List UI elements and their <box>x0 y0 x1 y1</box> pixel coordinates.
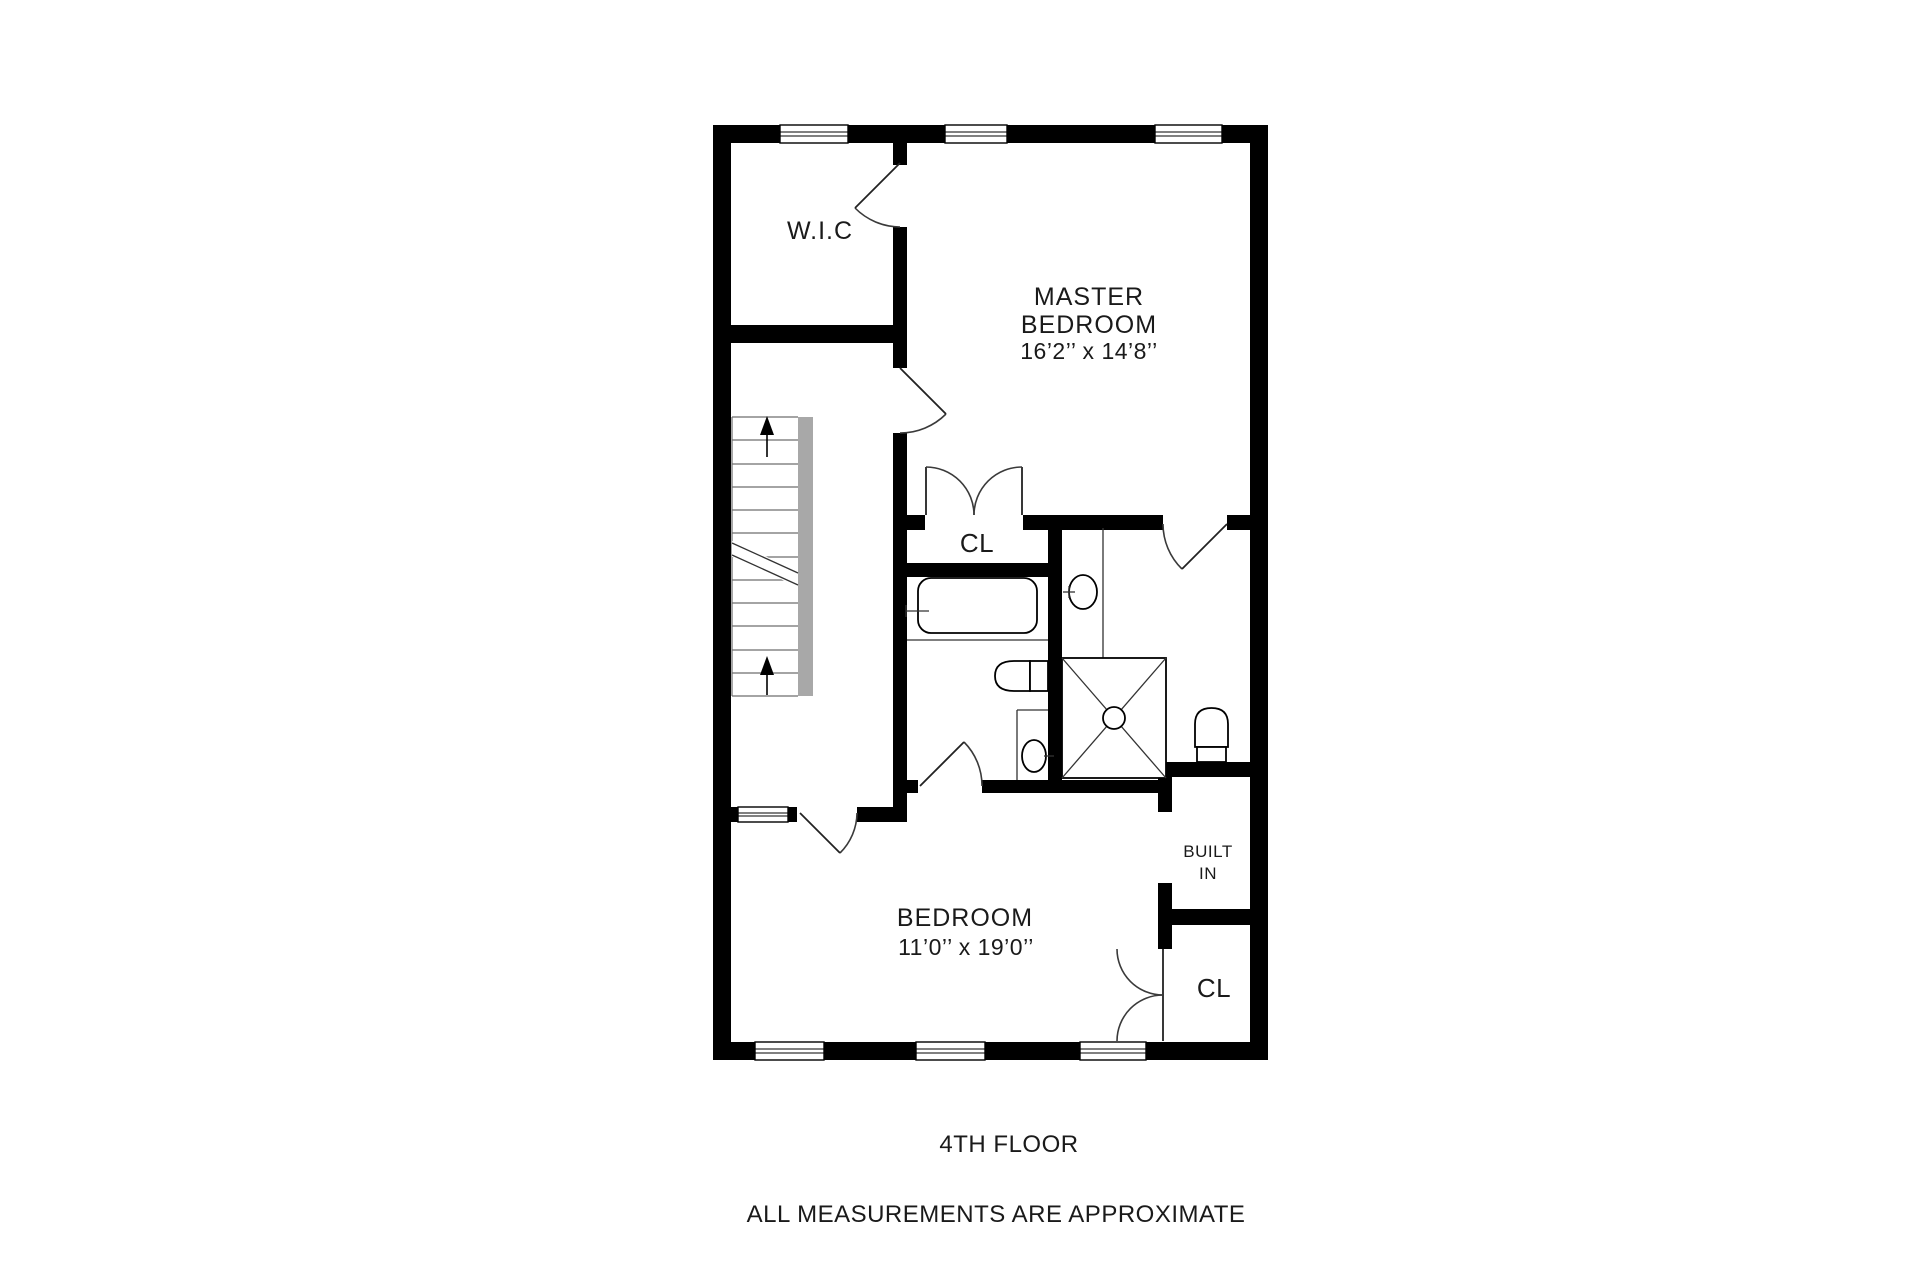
wall-closet-bottom <box>907 563 1048 577</box>
toilet-bath2 <box>1195 708 1228 762</box>
labels: W.I.C MASTER BEDROOM 16’2’’ x 14’8’’ CL … <box>747 217 1246 1228</box>
bathroom1-door <box>920 742 982 786</box>
staircase <box>732 416 813 696</box>
wall-master-bottom-a <box>907 515 925 530</box>
wall-left <box>713 125 731 1060</box>
window-hall <box>738 807 788 822</box>
master-closet-double-door <box>926 467 1022 515</box>
wall-master-bottom-c <box>1227 515 1250 530</box>
stair-up-arrow-top <box>760 416 774 457</box>
wall-bath1-bottom-b <box>982 780 1170 793</box>
stair-rail <box>798 417 813 696</box>
floor-plan-drawing: W.I.C MASTER BEDROOM 16’2’’ x 14’8’’ CL … <box>0 0 1920 1282</box>
window-top-3 <box>1155 125 1222 143</box>
window-top-1 <box>780 125 848 143</box>
built-in-label-line1: BUILT <box>1183 842 1232 861</box>
wall-bath2-bottom <box>1170 762 1250 777</box>
bedroom-closet-double-door <box>1117 949 1163 1041</box>
wall-builtin-bottom <box>1158 909 1250 925</box>
bathtub <box>906 578 1037 633</box>
disclaimer-text: ALL MEASUREMENTS ARE APPROXIMATE <box>747 1201 1246 1228</box>
stair-up-arrow-bottom <box>760 656 774 695</box>
wic-label: W.I.C <box>787 217 853 245</box>
wall-wic-bottom <box>731 325 907 343</box>
window-top-2 <box>945 125 1007 143</box>
bedroom-label: BEDROOM <box>897 904 1033 932</box>
master-bedroom-dimensions: 16’2’’ x 14’8’’ <box>1020 338 1158 364</box>
bathroom2-door <box>1163 524 1227 569</box>
wall-hall-bottom-c <box>857 807 907 822</box>
wall-bath-shared <box>1048 530 1062 793</box>
built-in-label-line2: IN <box>1199 864 1217 883</box>
wall-wic-right-upper <box>893 143 907 165</box>
wall-hall-right-lower <box>893 433 907 807</box>
bedroom-entry-door <box>800 813 857 853</box>
wall-hall-right-upper <box>893 343 907 368</box>
floor-plan-page: W.I.C MASTER BEDROOM 16’2’’ x 14’8’’ CL … <box>0 0 1920 1282</box>
wall-bath1-bottom-a <box>907 780 918 793</box>
master-closet-label: CL <box>960 528 994 558</box>
master-bedroom-door <box>900 368 946 433</box>
bedroom-closet-label: CL <box>1197 973 1231 1003</box>
wall-right <box>1250 125 1268 1060</box>
floor-title: 4TH FLOOR <box>939 1131 1078 1158</box>
wall-master-bottom-b <box>1023 515 1163 530</box>
master-bedroom-label-line2: BEDROOM <box>1021 311 1157 339</box>
shower <box>1062 658 1166 778</box>
wic-door <box>855 163 900 227</box>
wall-hall-bottom-a <box>731 807 738 822</box>
master-bedroom-label-line1: MASTER <box>1034 283 1144 311</box>
window-bottom-3 <box>1080 1042 1146 1060</box>
wall-wic-right-lower <box>893 227 907 325</box>
wall-hall-bottom-b <box>788 807 797 822</box>
bedroom-dimensions: 11’0’’ x 19’0’’ <box>898 934 1034 960</box>
toilet-bath1 <box>995 661 1048 691</box>
window-bottom-2 <box>916 1042 985 1060</box>
vanity-bath2 <box>1063 528 1103 658</box>
window-bottom-1 <box>755 1042 824 1060</box>
